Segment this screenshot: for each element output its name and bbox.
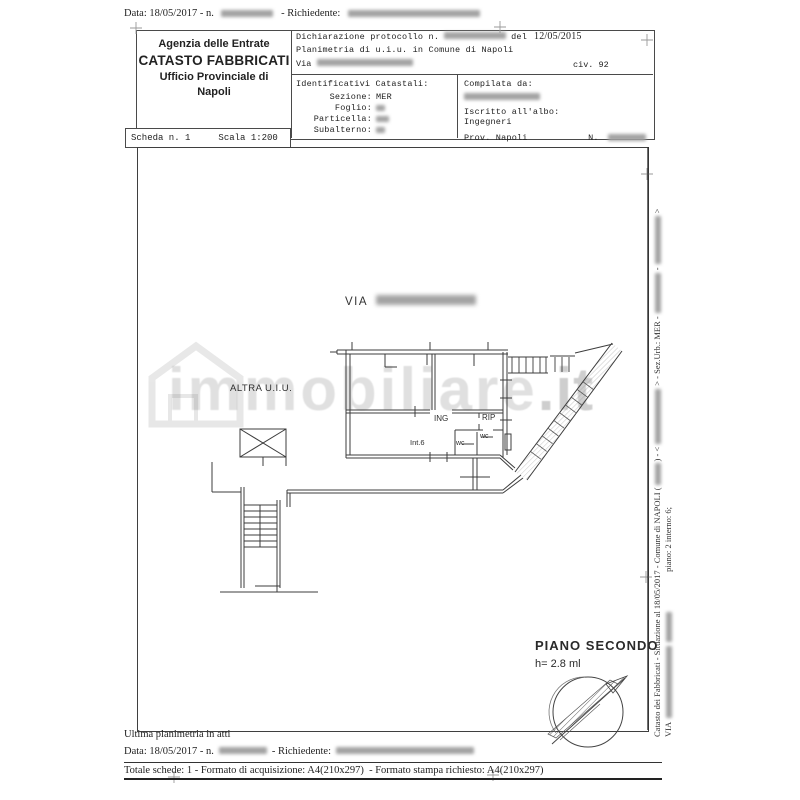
side-text-seg5: > — [652, 209, 662, 214]
apartment-walls — [330, 342, 515, 470]
altra-uiu-label: ALTRA U.I.U. — [230, 383, 292, 394]
internal-staircase — [220, 487, 318, 592]
redacted-text — [655, 389, 661, 444]
redacted-text — [655, 216, 661, 264]
side-vertical-text: Catasto dei Fabbricati - Situazione al 1… — [652, 737, 800, 759]
watermark-house-icon — [152, 346, 240, 424]
room-label-ing: ING — [434, 414, 448, 423]
footer-rule-bottom — [124, 778, 662, 780]
side-text-via: VIA — [663, 722, 673, 737]
piano-secondo-label: PIANO SECONDO — [535, 638, 659, 653]
footer-ultima: Ultima planimetria in atti — [124, 729, 230, 740]
floor-plan-drawing — [0, 0, 800, 800]
room-label-int6: Int.6 — [410, 438, 425, 447]
side-text-line2: VIApiano: 2 interno: 6; — [663, 209, 674, 737]
redacted-text — [655, 463, 661, 485]
side-text-seg2: ) - < — [652, 447, 662, 462]
footer-rule-top — [124, 762, 662, 763]
corridor — [212, 458, 523, 507]
redacted-text — [336, 747, 474, 754]
redacted-text — [219, 747, 267, 754]
footer-richiedente-label: - Richiedente: — [272, 746, 331, 757]
footer-data-label: Data: 18/05/2017 - n. — [124, 746, 214, 757]
room-label-rip: RIP — [482, 413, 495, 422]
side-text-line1: Catasto dei Fabbricati - Situazione al 1… — [652, 209, 663, 737]
redacted-text — [655, 273, 661, 313]
via-street-label: VIA — [345, 295, 476, 308]
side-text-seg4: - — [652, 267, 662, 270]
footer-totale-row: Totale schede: 1 - Formato di acquisizio… — [124, 765, 543, 776]
external-stairs — [515, 343, 622, 480]
room-label-wc1: wc — [456, 440, 465, 447]
north-arrow-icon — [548, 676, 627, 747]
room-label-wc2: wc — [480, 433, 489, 440]
elevator-shaft — [240, 429, 286, 466]
footer-data-row: Data: 18/05/2017 - n. - Richiedente: — [124, 746, 474, 757]
redacted-text — [376, 295, 476, 305]
side-text-seg1: Catasto dei Fabbricati - Situazione al 1… — [652, 487, 662, 737]
redacted-text — [666, 646, 672, 718]
piano-height-label: h= 2.8 ml — [535, 658, 581, 670]
via-street-text: VIA — [345, 296, 368, 308]
cadastral-document-page: Data: 18/05/2017 - n. - Richiedente: Age… — [0, 0, 800, 800]
side-text-piano: piano: 2 interno: 6; — [663, 507, 673, 572]
side-text-seg3: > - Sez.Urb.: MER - — [652, 316, 662, 385]
redacted-text — [666, 612, 672, 642]
